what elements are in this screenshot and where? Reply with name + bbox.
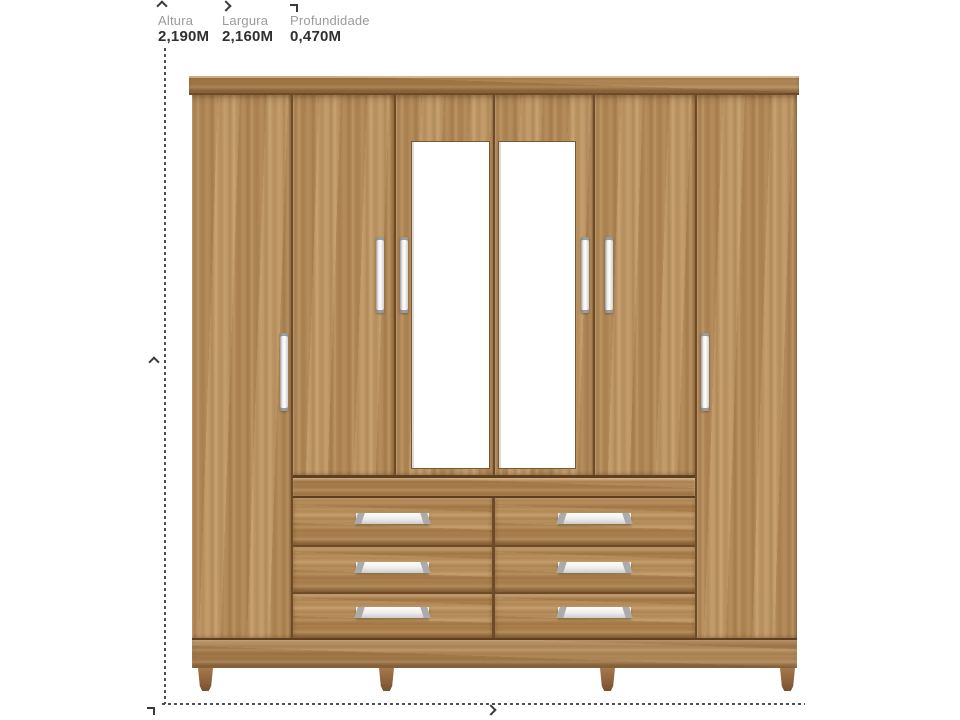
door-handle [280,333,288,411]
height-mid-arrow-icon [148,356,159,367]
product-image: Altura 2,190M Largura 2,160M Profundidad… [0,0,960,720]
depth-corner-icon [290,4,298,12]
wardrobe-leg [379,668,394,691]
wardrobe-leg [198,668,213,691]
drawer [495,547,695,592]
door-6 [697,95,797,638]
door-3 [396,95,493,475]
dimension-profundidade: Profundidade 0,470M [290,2,370,45]
drawer [495,594,695,638]
dimension-value: 0,470M [290,28,370,45]
door-handle [376,237,384,313]
drawer-handle [558,513,631,524]
dimension-label: Profundidade [290,14,370,28]
drawer-handle [558,562,631,573]
depth-corner-mark-icon [147,707,155,715]
drawer-handle [356,513,429,524]
wardrobe-base-rail [192,638,797,668]
drawer-handle [356,607,429,618]
drawer-handle [356,562,429,573]
width-dashed-line [162,703,805,705]
dimension-label: Altura [158,14,209,28]
drawer [293,594,492,638]
door-2 [293,95,394,475]
dimension-label: Largura [222,14,273,28]
drawer [293,547,492,592]
door-4 [495,95,593,475]
door-handle [701,333,709,411]
width-mid-arrow-icon [485,704,496,715]
door-handle [400,237,408,313]
dimension-altura: Altura 2,190M [158,2,209,45]
wardrobe-crown [189,76,799,95]
drawer-center-divider [492,498,495,638]
door-handle [581,237,589,313]
drawer [293,498,492,545]
arrow-up-icon [156,0,167,11]
door-handle [605,237,613,313]
wardrobe-leg [780,668,795,691]
door-5 [595,95,695,475]
mirror [498,141,576,469]
drawer-top-rail [293,475,695,498]
wardrobe-carcass [192,95,797,668]
dimension-largura: Largura 2,160M [222,2,273,45]
height-dashed-line [164,48,166,704]
mirror [411,141,490,469]
arrow-right-icon [220,0,231,11]
wardrobe [189,76,799,692]
dimension-value: 2,190M [158,28,209,45]
drawer [495,498,695,545]
door-1 [192,95,291,638]
dimension-value: 2,160M [222,28,273,45]
drawer-handle [558,607,631,618]
wardrobe-leg [600,668,615,691]
